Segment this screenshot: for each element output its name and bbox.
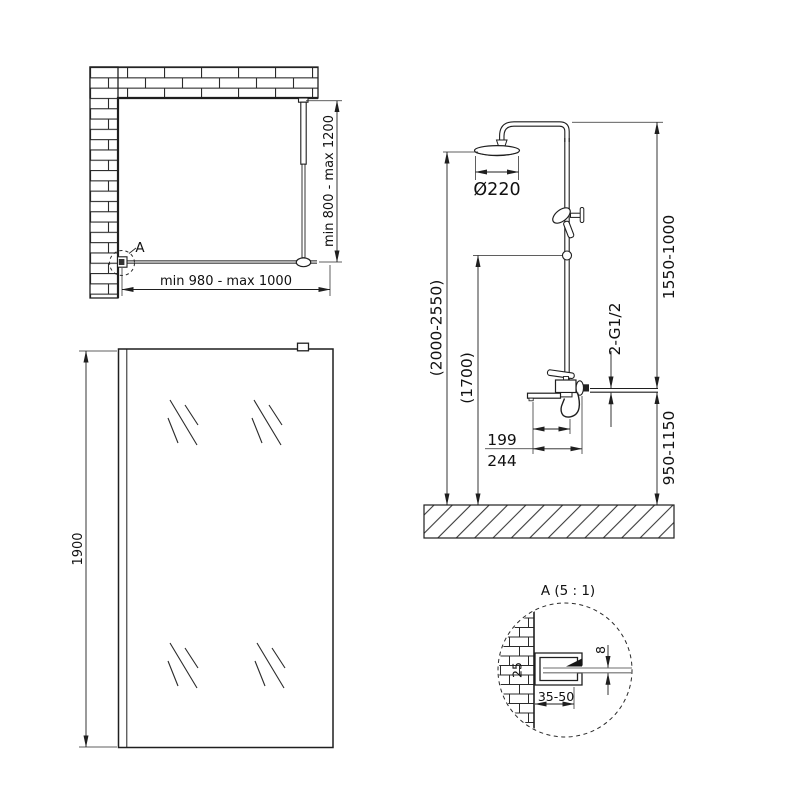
spout-reach-label: 199 [487,431,517,449]
shower-mixer [528,370,590,417]
head-diameter-label: Ø220 [473,180,520,200]
plan-view: A min 980 - max 1000 min 800 - max 1200 [90,67,342,298]
plan-wall-inner-edge [118,98,318,298]
plan-detail-marker-label: A [135,240,145,256]
technical-drawing-page: A min 980 - max 1000 min 800 - max 1200 [0,0,800,800]
plan-wall-top [90,67,318,98]
front-height-dimension-label: 1900 [71,532,86,565]
overall-height-label: (2000-2550) [428,280,446,377]
detail-glass-panel [543,668,632,673]
detail-title: A (5 : 1) [541,583,595,599]
detail-wall-profile [535,653,582,685]
plan-bar-clamp [296,258,310,267]
shower-hose-connector [563,251,572,260]
detail-mount-depth-label: 35-50 [538,689,574,704]
plan-support-bar [296,98,310,267]
detail-mount-depth-dimension: 35-50 [535,687,574,709]
plan-width-dimension: min 980 - max 1000 [122,265,330,296]
spout-reach-dimension: 199 [487,396,582,454]
mixer-height-dimension: 950-1150 [657,393,678,505]
connection-dimension: 2-G1/2 [606,303,624,427]
shower-column-view: Ø220 (2000-2550) (1700) 1550-1000 950-11… [424,122,678,538]
shower-riser-pipe [500,122,570,381]
riser-height-dimension: 1550-1000 [572,122,678,388]
front-top-clamp [298,343,309,351]
plan-wall-profile [118,257,128,267]
technical-drawing: A min 980 - max 1000 min 800 - max 1200 [0,0,800,800]
detail-seal-wedge [566,659,582,667]
detail-glass-thickness-dimension: 8 [593,645,608,695]
shower-supply-lines [590,389,658,393]
front-view: 1900 [71,343,333,747]
mixer-spout [528,393,561,398]
overall-height-dimension: (2000-2550) [428,152,479,505]
shower-hand-shower [550,205,584,239]
detail-glass-thickness-label: 8 [593,646,608,654]
shower-rain-head [475,140,520,156]
spout-total-dimension: 244 [485,449,582,470]
front-glass-panel [119,349,334,748]
front-height-dimension: 1900 [71,351,117,747]
mixer-wall-nub [583,384,589,391]
detail-a-view: A (5 : 1) 25 8 35-50 [498,583,632,740]
handshower-height-label: (1700) [458,352,476,404]
mixer-height-label: 950-1150 [660,411,678,486]
detail-profile-height-label: 25 [510,662,525,678]
head-diameter-dimension: Ø220 [473,156,520,200]
plan-glass-panel [125,261,317,264]
riser-height-label: 1550-1000 [660,215,678,300]
plan-wall-left [90,67,118,298]
plan-depth-dimension-label: min 800 - max 1200 [322,115,337,247]
shower-floor [424,505,674,538]
plan-width-dimension-label: min 980 - max 1000 [160,274,292,289]
plan-depth-dimension: min 800 - max 1200 [306,101,342,262]
spout-total-label: 244 [487,452,517,470]
connection-label: 2-G1/2 [606,303,624,356]
